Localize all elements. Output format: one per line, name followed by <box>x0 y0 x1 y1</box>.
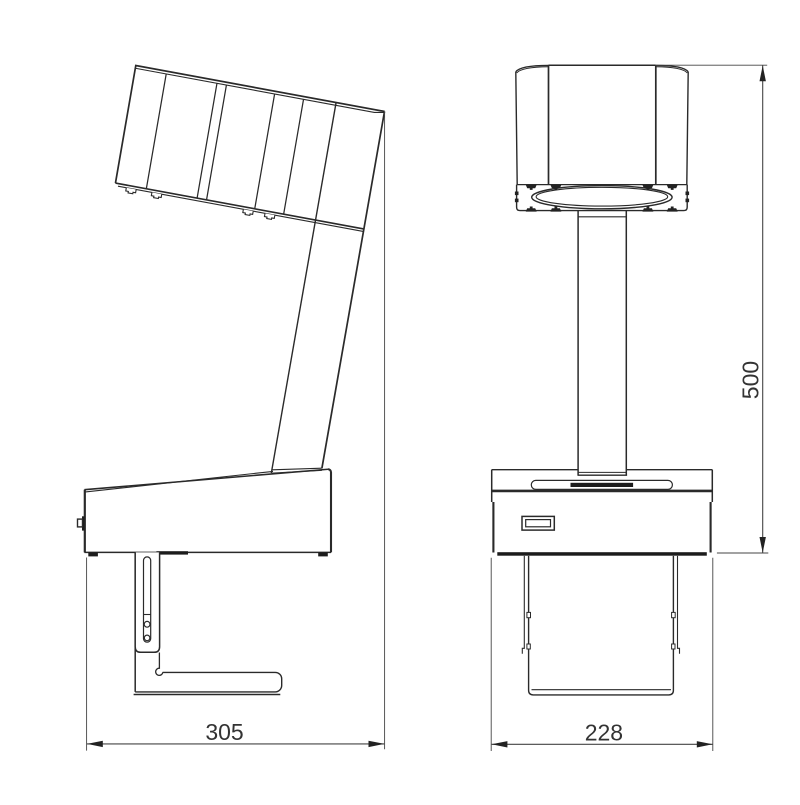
svg-text:500: 500 <box>738 361 764 399</box>
svg-text:228: 228 <box>585 719 623 745</box>
svg-text:305: 305 <box>205 719 243 745</box>
